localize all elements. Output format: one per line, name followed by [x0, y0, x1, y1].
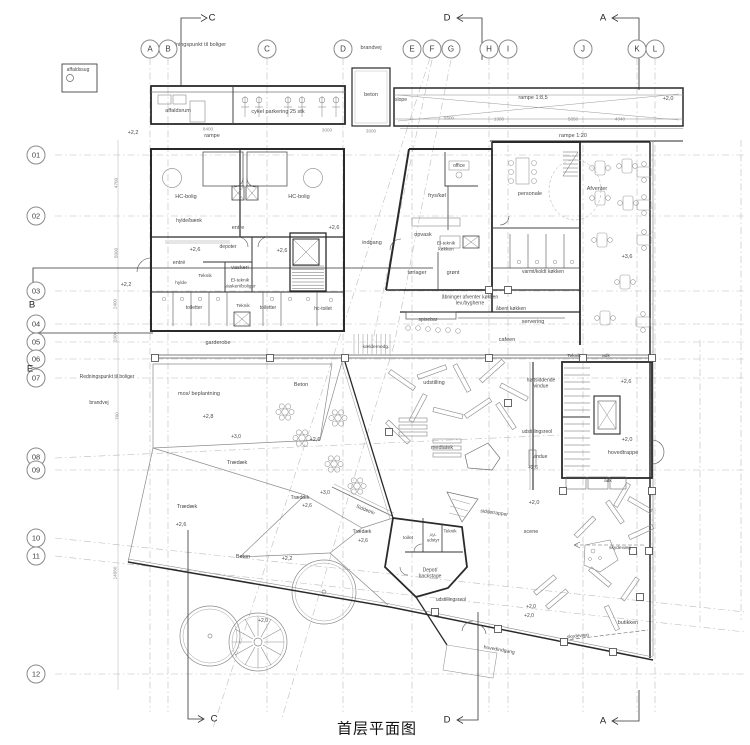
plan-label: +2,0 — [526, 605, 536, 611]
plan-label: Depot/ backstage — [419, 568, 442, 580]
plan-label: Redningspunkt til boliger — [80, 375, 135, 381]
plan-label: rampe 1:20 — [559, 133, 587, 139]
plan-label: vaskeri — [231, 265, 248, 271]
grid-column-bubble: H — [480, 40, 499, 59]
dimension-label: 1300 — [494, 117, 504, 122]
plan-label: brandvej — [89, 401, 108, 407]
plan-label: toilet — [403, 536, 413, 542]
grid-column-bubble: G — [442, 40, 461, 59]
section-marker-letter: C — [211, 714, 218, 725]
plan-label: +2,6 — [310, 437, 321, 443]
dimension-label: 2000 — [113, 332, 118, 342]
plan-label: mediatek — [431, 445, 453, 451]
plan-label: hovedtrappe — [608, 450, 639, 456]
plan-label: mos/ beplantning — [178, 391, 220, 397]
plan-label: +2,6 — [176, 522, 187, 528]
plan-label: hc-toilet — [314, 307, 332, 313]
exhibition-hall — [128, 362, 664, 678]
dimension-label: 4040 — [615, 117, 625, 122]
section-marker-letter: E — [27, 364, 33, 375]
grid-column-bubble: I — [499, 40, 518, 59]
plan-label: frys/køl — [428, 193, 446, 199]
plan-label: tørlager — [408, 270, 427, 276]
tree-symbols — [180, 560, 356, 671]
plan-label: +2,0 — [622, 437, 633, 443]
plan-label: El-teknik Vaskeri/boliger — [224, 278, 255, 289]
plan-label: +2,6 — [277, 248, 288, 254]
dimension-label: 700 — [115, 412, 120, 420]
plan-label: servering — [522, 319, 545, 325]
plan-label: brandvej — [360, 45, 381, 51]
grid-column-bubble: J — [574, 40, 593, 59]
dimension-label: 3000 — [322, 128, 332, 133]
plan-label: grønt — [447, 270, 460, 276]
grid-column-bubble: D — [334, 40, 353, 59]
plan-label: +2,2 — [128, 130, 139, 136]
grid-column-bubble: F — [423, 40, 442, 59]
section-marker-lines — [30, 15, 640, 725]
dimension-label: 5000 — [114, 248, 119, 258]
plan-label: +3,6 — [622, 254, 633, 260]
section-marker-letter: D — [444, 13, 451, 24]
plan-label: +2,6 — [621, 379, 632, 385]
plan-label: butikken — [618, 620, 639, 626]
section-marker-letter: D — [444, 715, 451, 726]
grid-column-bubble: C — [258, 40, 277, 59]
plan-label: Teknik — [567, 354, 581, 360]
plan-label: entré — [173, 260, 186, 266]
grid-row-bubble: 09 — [27, 461, 46, 480]
plan-label: +2,6 — [302, 504, 312, 510]
plan-label: +2,6 — [528, 466, 538, 472]
plan-label: HC-bolig — [288, 194, 309, 200]
plan-label: scene — [524, 529, 539, 535]
plan-label: indgang — [362, 240, 382, 246]
plan-label: rampe — [204, 133, 220, 139]
plan-label: hylde — [175, 281, 186, 287]
plan-label: slope — [395, 98, 407, 104]
plan-label: +2,0 — [524, 614, 534, 620]
plan-label: entre — [232, 225, 245, 231]
plan-label: +2,0 — [258, 619, 268, 625]
plan-label: garderobe — [205, 340, 230, 346]
plan-label: toiletter — [260, 306, 276, 312]
plan-label: adk — [602, 354, 610, 360]
dimension-label: 2400 — [113, 299, 118, 309]
dimension-label: 5050 — [568, 117, 578, 122]
plan-label: Teknik — [236, 304, 250, 310]
grid-row-bubble: 04 — [27, 315, 46, 334]
plan-label: +2,2 — [121, 282, 132, 288]
plan-label: +3,0 — [320, 491, 330, 497]
kitchen-block — [386, 149, 492, 290]
plan-label: Trædæk — [227, 460, 248, 466]
exhibition-plinths — [386, 359, 654, 630]
dimension-label: 8400 — [203, 127, 213, 132]
grid-column-bubble: B — [159, 40, 178, 59]
grid-row-bubble: 12 — [27, 665, 46, 684]
plan-label: affaldsrum — [165, 108, 191, 114]
dimension-label: 3000 — [366, 129, 376, 134]
plan-label: cykel parkering 25 stk — [251, 109, 304, 115]
grid-row-bubble: 03 — [27, 282, 46, 301]
plan-label: +2,6 — [329, 225, 340, 231]
plan-label: toiletter — [186, 306, 202, 312]
plan-label: +2,6 — [190, 247, 201, 253]
grid-row-bubble: 02 — [27, 207, 46, 226]
plan-label: +2,8 — [203, 414, 214, 420]
section-marker-letter: A — [600, 716, 606, 727]
floor-plan-drawing — [0, 0, 750, 745]
section-marker-letter: C — [209, 13, 216, 24]
plan-label: vindue — [533, 455, 548, 461]
plan-label: +2,6 — [358, 539, 368, 545]
plan-label: åbninger afventer køkken lev./bygherre — [442, 295, 498, 307]
plan-label: +3,0 — [231, 435, 241, 441]
grid-row-bubble: 10 — [27, 529, 46, 548]
plan-label: Afventer — [587, 186, 607, 192]
plan-label: varmt/koldt køkken — [522, 270, 564, 276]
plan-label: +2,2 — [282, 556, 293, 562]
grid-column-bubble: E — [403, 40, 422, 59]
plan-label: kældernedg. — [363, 345, 390, 351]
plan-label: HC-bolig — [175, 194, 196, 200]
dimension-label: 14080 — [113, 567, 118, 580]
cafe-area — [580, 142, 653, 658]
dimension-label: 5500 — [444, 116, 454, 121]
plan-label: udstillingsreol — [436, 598, 466, 604]
plan-label: +2,0 — [529, 500, 540, 506]
plan-label: udstilling — [423, 380, 444, 386]
plan-label: office — [453, 164, 465, 170]
dimension-label: 4700 — [114, 178, 119, 188]
plan-label: skydevæg — [609, 546, 631, 552]
plan-label: depoter — [220, 245, 237, 251]
plan-label: spisebar — [419, 318, 438, 324]
staff-block — [492, 142, 601, 345]
grid-column-bubble: K — [628, 40, 647, 59]
grid-column-bubble: A — [141, 40, 160, 59]
plan-label: Teknik — [198, 274, 212, 280]
plan-label: Trædæk — [177, 504, 198, 510]
plan-label: opvask — [414, 232, 431, 238]
grid-row-bubble: 11 — [27, 547, 46, 566]
plan-label: personale — [518, 191, 542, 197]
plan-label: El-teknik køkken — [437, 241, 455, 252]
plan-label: åbent køkken — [496, 307, 526, 313]
section-marker-letter: B — [29, 300, 35, 311]
plan-label: affaldssug — [67, 68, 90, 74]
plan-label: Trædæk — [291, 496, 310, 502]
plan-label: AV- udstyr — [427, 533, 440, 544]
section-marker-letter: A — [600, 13, 606, 24]
floor-plan-page: ABCDEFGHIJKL010203040506070809101112 CDA… — [0, 0, 750, 745]
grid-column-bubble: L — [646, 40, 665, 59]
plan-label: adk — [604, 479, 612, 485]
plan-label: Teknik — [443, 528, 456, 533]
grid-row-bubble: 01 — [27, 146, 46, 165]
grid-lines — [55, 58, 745, 728]
plan-label: udstillingsreol — [522, 430, 552, 436]
drawing-title: 首层平面图 — [337, 718, 417, 739]
plan-label: beton — [364, 92, 378, 98]
plan-label: Trædæk — [353, 530, 372, 536]
plan-label: rampe 1:8,5 — [518, 95, 547, 101]
plan-label: hylde/bænk — [176, 219, 202, 225]
plan-label: Beton — [236, 554, 250, 560]
plan-label: +2,0 — [663, 96, 674, 102]
plan-label: Beton — [294, 382, 308, 388]
plan-label: højtsiddende vindue — [527, 378, 556, 390]
plan-label: cafeen — [499, 337, 516, 343]
